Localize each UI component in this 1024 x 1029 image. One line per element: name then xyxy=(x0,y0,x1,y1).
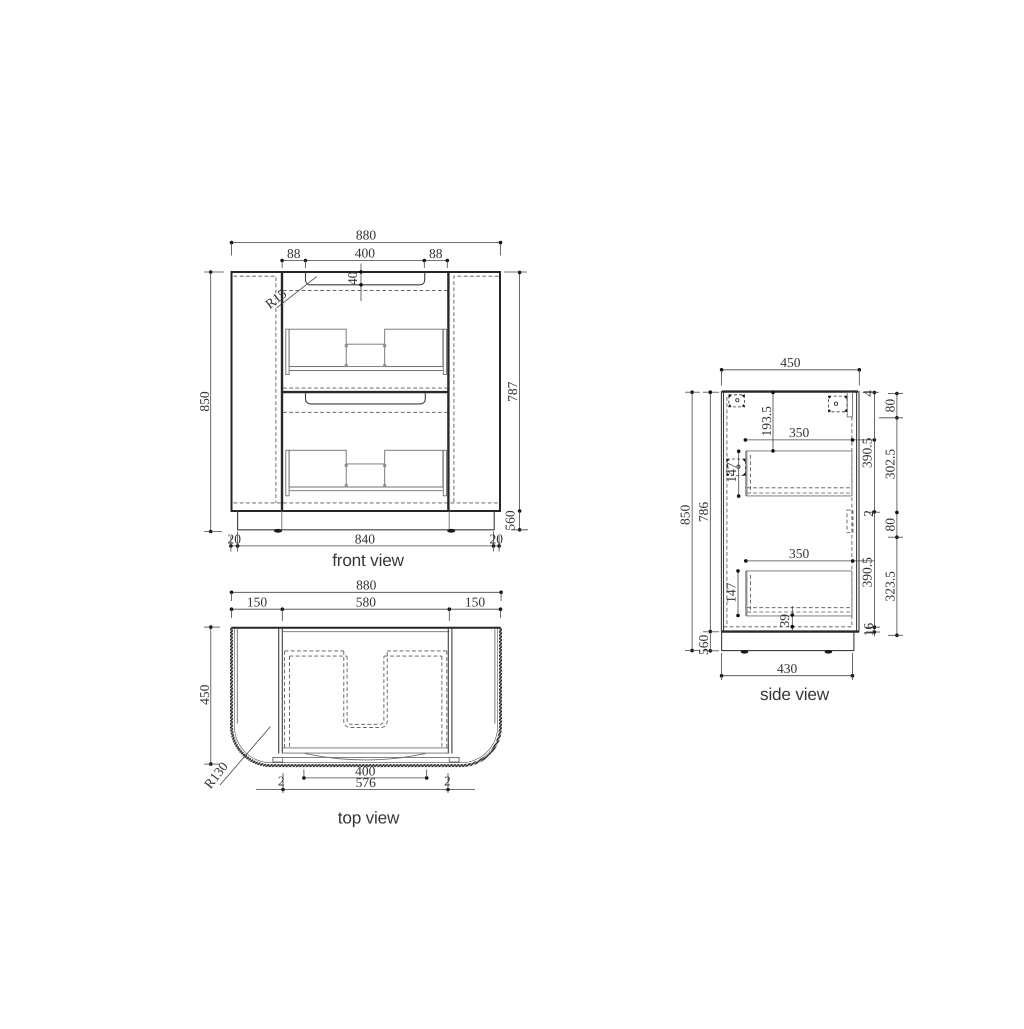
svg-text:20: 20 xyxy=(490,531,504,546)
svg-text:400: 400 xyxy=(355,246,376,261)
svg-text:80: 80 xyxy=(882,399,897,413)
svg-text:147: 147 xyxy=(724,582,739,603)
svg-text:side view: side view xyxy=(760,684,830,704)
svg-text:2: 2 xyxy=(861,510,876,517)
svg-text:20: 20 xyxy=(227,531,241,546)
svg-text:450: 450 xyxy=(780,355,801,370)
svg-text:786: 786 xyxy=(696,502,711,523)
svg-text:390.5: 390.5 xyxy=(860,437,875,468)
svg-text:840: 840 xyxy=(355,531,376,546)
svg-text:880: 880 xyxy=(356,578,377,593)
svg-text:450: 450 xyxy=(197,684,212,705)
svg-text:850: 850 xyxy=(677,505,692,526)
svg-text:350: 350 xyxy=(789,425,810,440)
svg-text:560: 560 xyxy=(503,510,518,531)
svg-text:880: 880 xyxy=(356,228,377,243)
svg-text:39: 39 xyxy=(777,614,792,628)
svg-text:850: 850 xyxy=(197,391,212,412)
svg-text:323.5: 323.5 xyxy=(882,571,897,602)
svg-text:front view: front view xyxy=(332,550,404,570)
svg-text:390.5: 390.5 xyxy=(860,557,875,588)
svg-text:193.5: 193.5 xyxy=(759,406,774,437)
svg-text:787: 787 xyxy=(505,381,520,402)
svg-text:top view: top view xyxy=(338,807,400,827)
svg-text:88: 88 xyxy=(429,246,443,261)
svg-text:560: 560 xyxy=(696,635,711,656)
svg-text:16: 16 xyxy=(861,623,876,637)
svg-text:150: 150 xyxy=(247,595,268,610)
svg-text:430: 430 xyxy=(777,661,798,676)
svg-text:150: 150 xyxy=(465,595,486,610)
svg-text:350: 350 xyxy=(789,546,810,561)
svg-text:580: 580 xyxy=(356,594,377,609)
svg-text:80: 80 xyxy=(882,518,897,532)
svg-text:302.5: 302.5 xyxy=(882,449,897,480)
svg-text:88: 88 xyxy=(287,246,301,261)
svg-text:2: 2 xyxy=(278,774,285,789)
svg-text:2: 2 xyxy=(444,774,451,789)
svg-text:40: 40 xyxy=(345,271,360,285)
svg-text:147: 147 xyxy=(724,462,739,483)
svg-text:576: 576 xyxy=(356,775,377,790)
svg-text:4: 4 xyxy=(860,390,875,397)
